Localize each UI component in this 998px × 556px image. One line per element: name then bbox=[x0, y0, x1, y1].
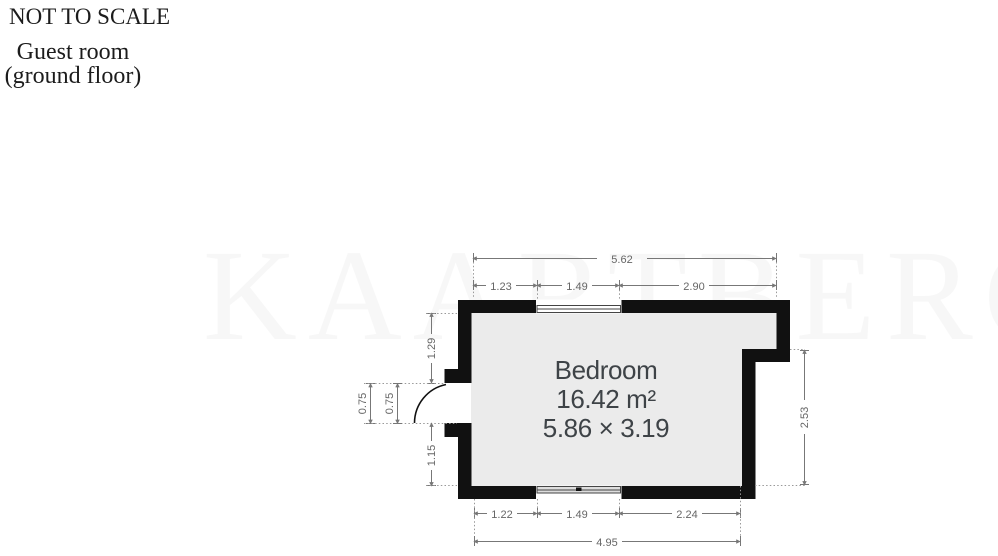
svg-text:1.15: 1.15 bbox=[426, 445, 438, 466]
svg-text:1.22: 1.22 bbox=[491, 509, 512, 521]
svg-text:Bedroom: Bedroom bbox=[555, 355, 658, 385]
svg-text:1.49: 1.49 bbox=[566, 509, 587, 521]
svg-text:1.29: 1.29 bbox=[426, 338, 438, 359]
svg-text:0.75: 0.75 bbox=[384, 393, 396, 414]
svg-text:0.75: 0.75 bbox=[357, 393, 369, 414]
svg-text:4.95: 4.95 bbox=[596, 537, 617, 549]
svg-text:1.49: 1.49 bbox=[566, 281, 587, 293]
svg-text:5.62: 5.62 bbox=[611, 254, 632, 266]
svg-text:16.42 m²: 16.42 m² bbox=[556, 384, 656, 414]
svg-text:2.53: 2.53 bbox=[799, 407, 811, 428]
svg-text:2.90: 2.90 bbox=[683, 281, 704, 293]
svg-text:2.24: 2.24 bbox=[676, 509, 697, 521]
svg-text:1.23: 1.23 bbox=[490, 281, 511, 293]
svg-text:5.86 × 3.19: 5.86 × 3.19 bbox=[543, 413, 669, 443]
